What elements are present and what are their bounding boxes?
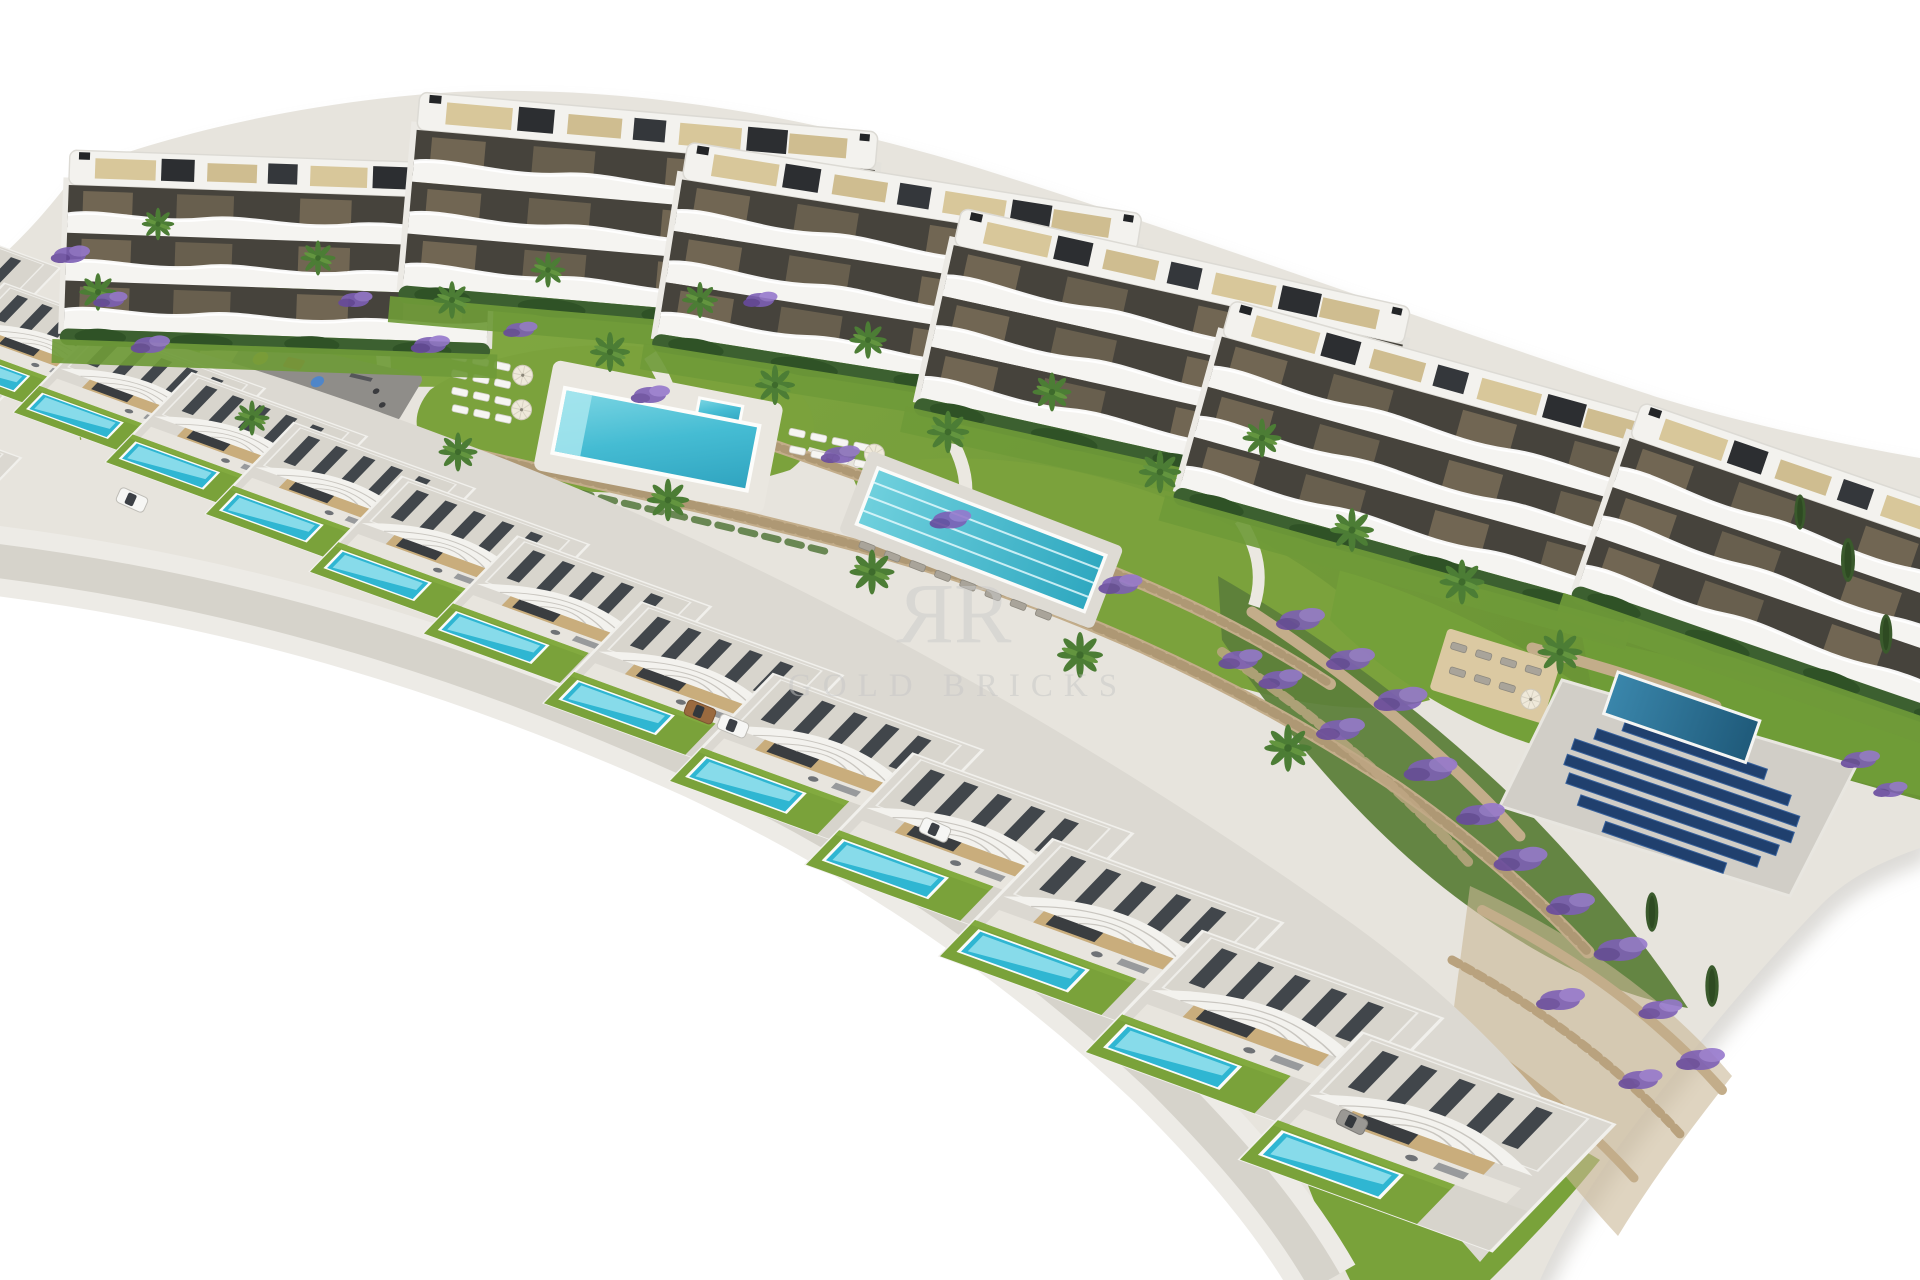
render-canvas: R R GOLD BRICKS bbox=[0, 0, 1920, 1280]
development-render: R R GOLD BRICKS bbox=[0, 0, 1920, 1280]
watermark-logo-letter: R bbox=[954, 565, 1012, 661]
watermark-logo: R R bbox=[896, 565, 1012, 661]
watermark-logo-letter-mirrored: R bbox=[896, 565, 954, 661]
watermark-text: GOLD BRICKS bbox=[788, 668, 1128, 704]
